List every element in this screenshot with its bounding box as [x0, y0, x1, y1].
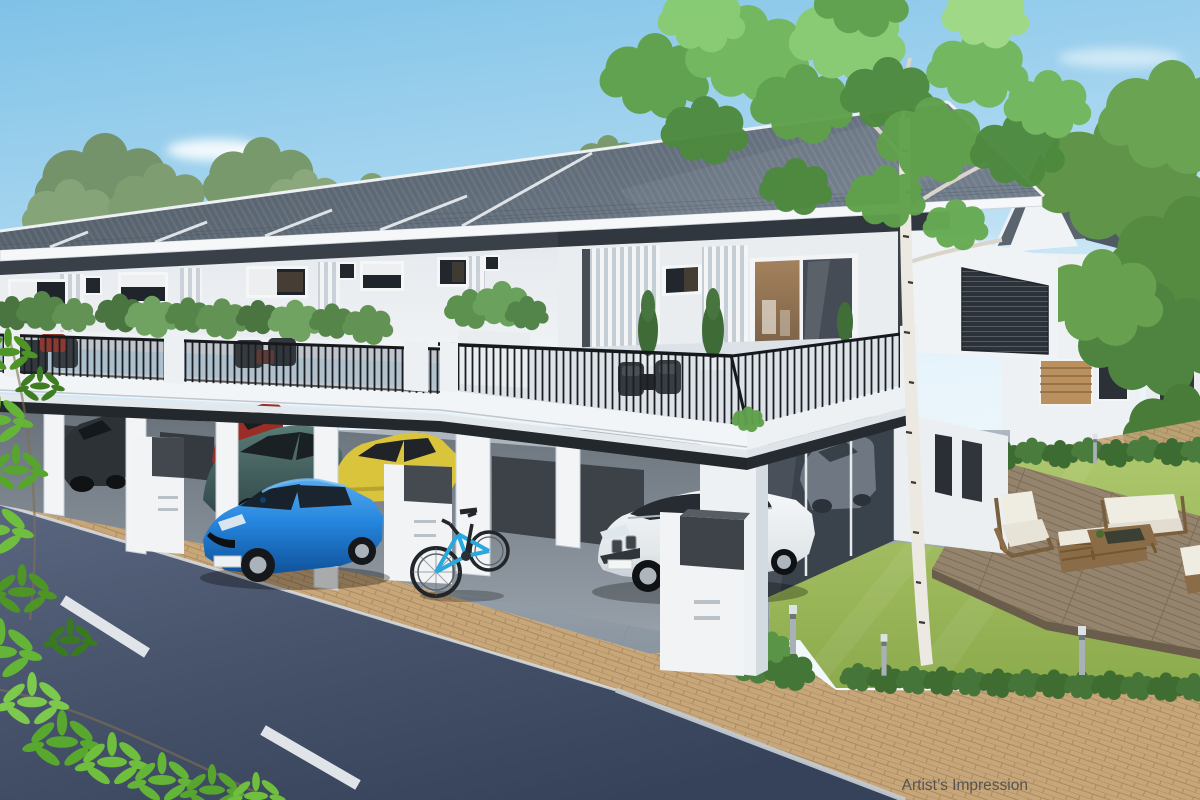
caption: Artist’s Impression [902, 777, 1028, 794]
mailbox-pedestal-1 [130, 436, 184, 554]
architectural-rendering: Artist’s Impression [0, 0, 1200, 800]
mailbox-pedestal-3 [660, 509, 750, 676]
